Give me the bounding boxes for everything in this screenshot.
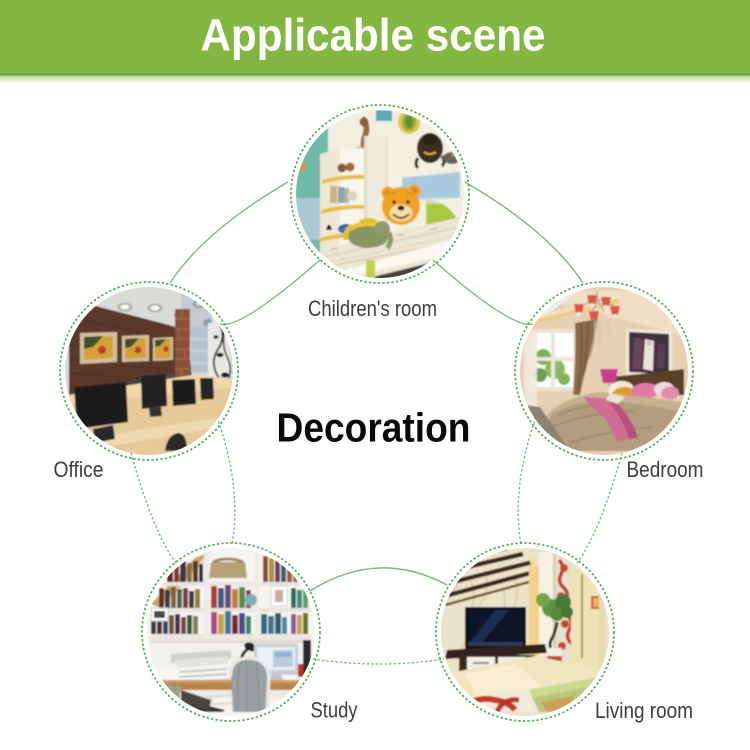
svg-text:Applicable scene: Applicable scene [201, 10, 546, 61]
svg-text:Study: Study [311, 698, 358, 723]
svg-text:Office: Office [54, 457, 104, 482]
svg-text:Children's room: Children's room [308, 296, 437, 321]
svg-text:Decoration: Decoration [277, 405, 471, 451]
svg-text:Living room: Living room [595, 698, 693, 723]
svg-text:Bedroom: Bedroom [627, 457, 704, 482]
